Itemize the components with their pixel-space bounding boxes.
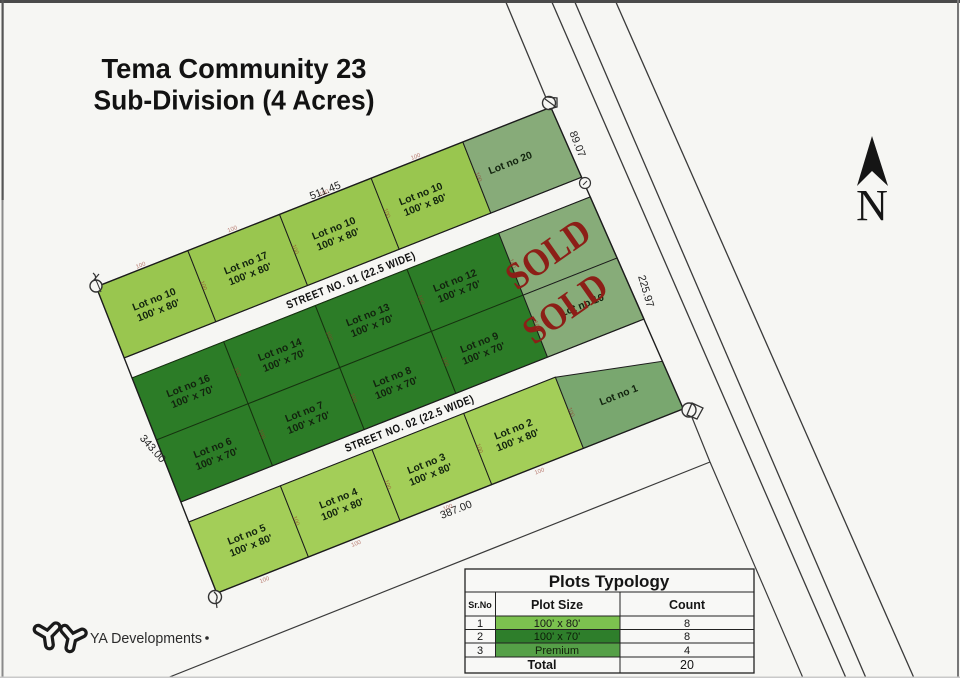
svg-text:100' x 80': 100' x 80' <box>534 618 580 630</box>
svg-text:Premium: Premium <box>535 645 579 657</box>
svg-text:Sub-Division (4 Acres): Sub-Division (4 Acres) <box>94 85 375 116</box>
svg-text:Tema Community 23: Tema Community 23 <box>102 53 367 84</box>
svg-text:Plot Size: Plot Size <box>531 598 583 612</box>
svg-text:1: 1 <box>477 618 483 630</box>
svg-text:2: 2 <box>477 631 483 643</box>
svg-text:Sr.No: Sr.No <box>468 600 492 610</box>
svg-text:Total: Total <box>528 658 557 672</box>
svg-text:20: 20 <box>680 658 694 672</box>
svg-text:4: 4 <box>684 645 690 657</box>
svg-text:3: 3 <box>477 645 483 657</box>
svg-text:Count: Count <box>669 598 706 612</box>
svg-text:8: 8 <box>684 631 690 643</box>
svg-text:Plots Typology: Plots Typology <box>549 572 670 591</box>
svg-text:YA Developments: YA Developments <box>90 630 202 647</box>
svg-text:100' x 70': 100' x 70' <box>534 631 580 643</box>
svg-text:N: N <box>856 181 888 230</box>
svg-text:8: 8 <box>684 618 690 630</box>
